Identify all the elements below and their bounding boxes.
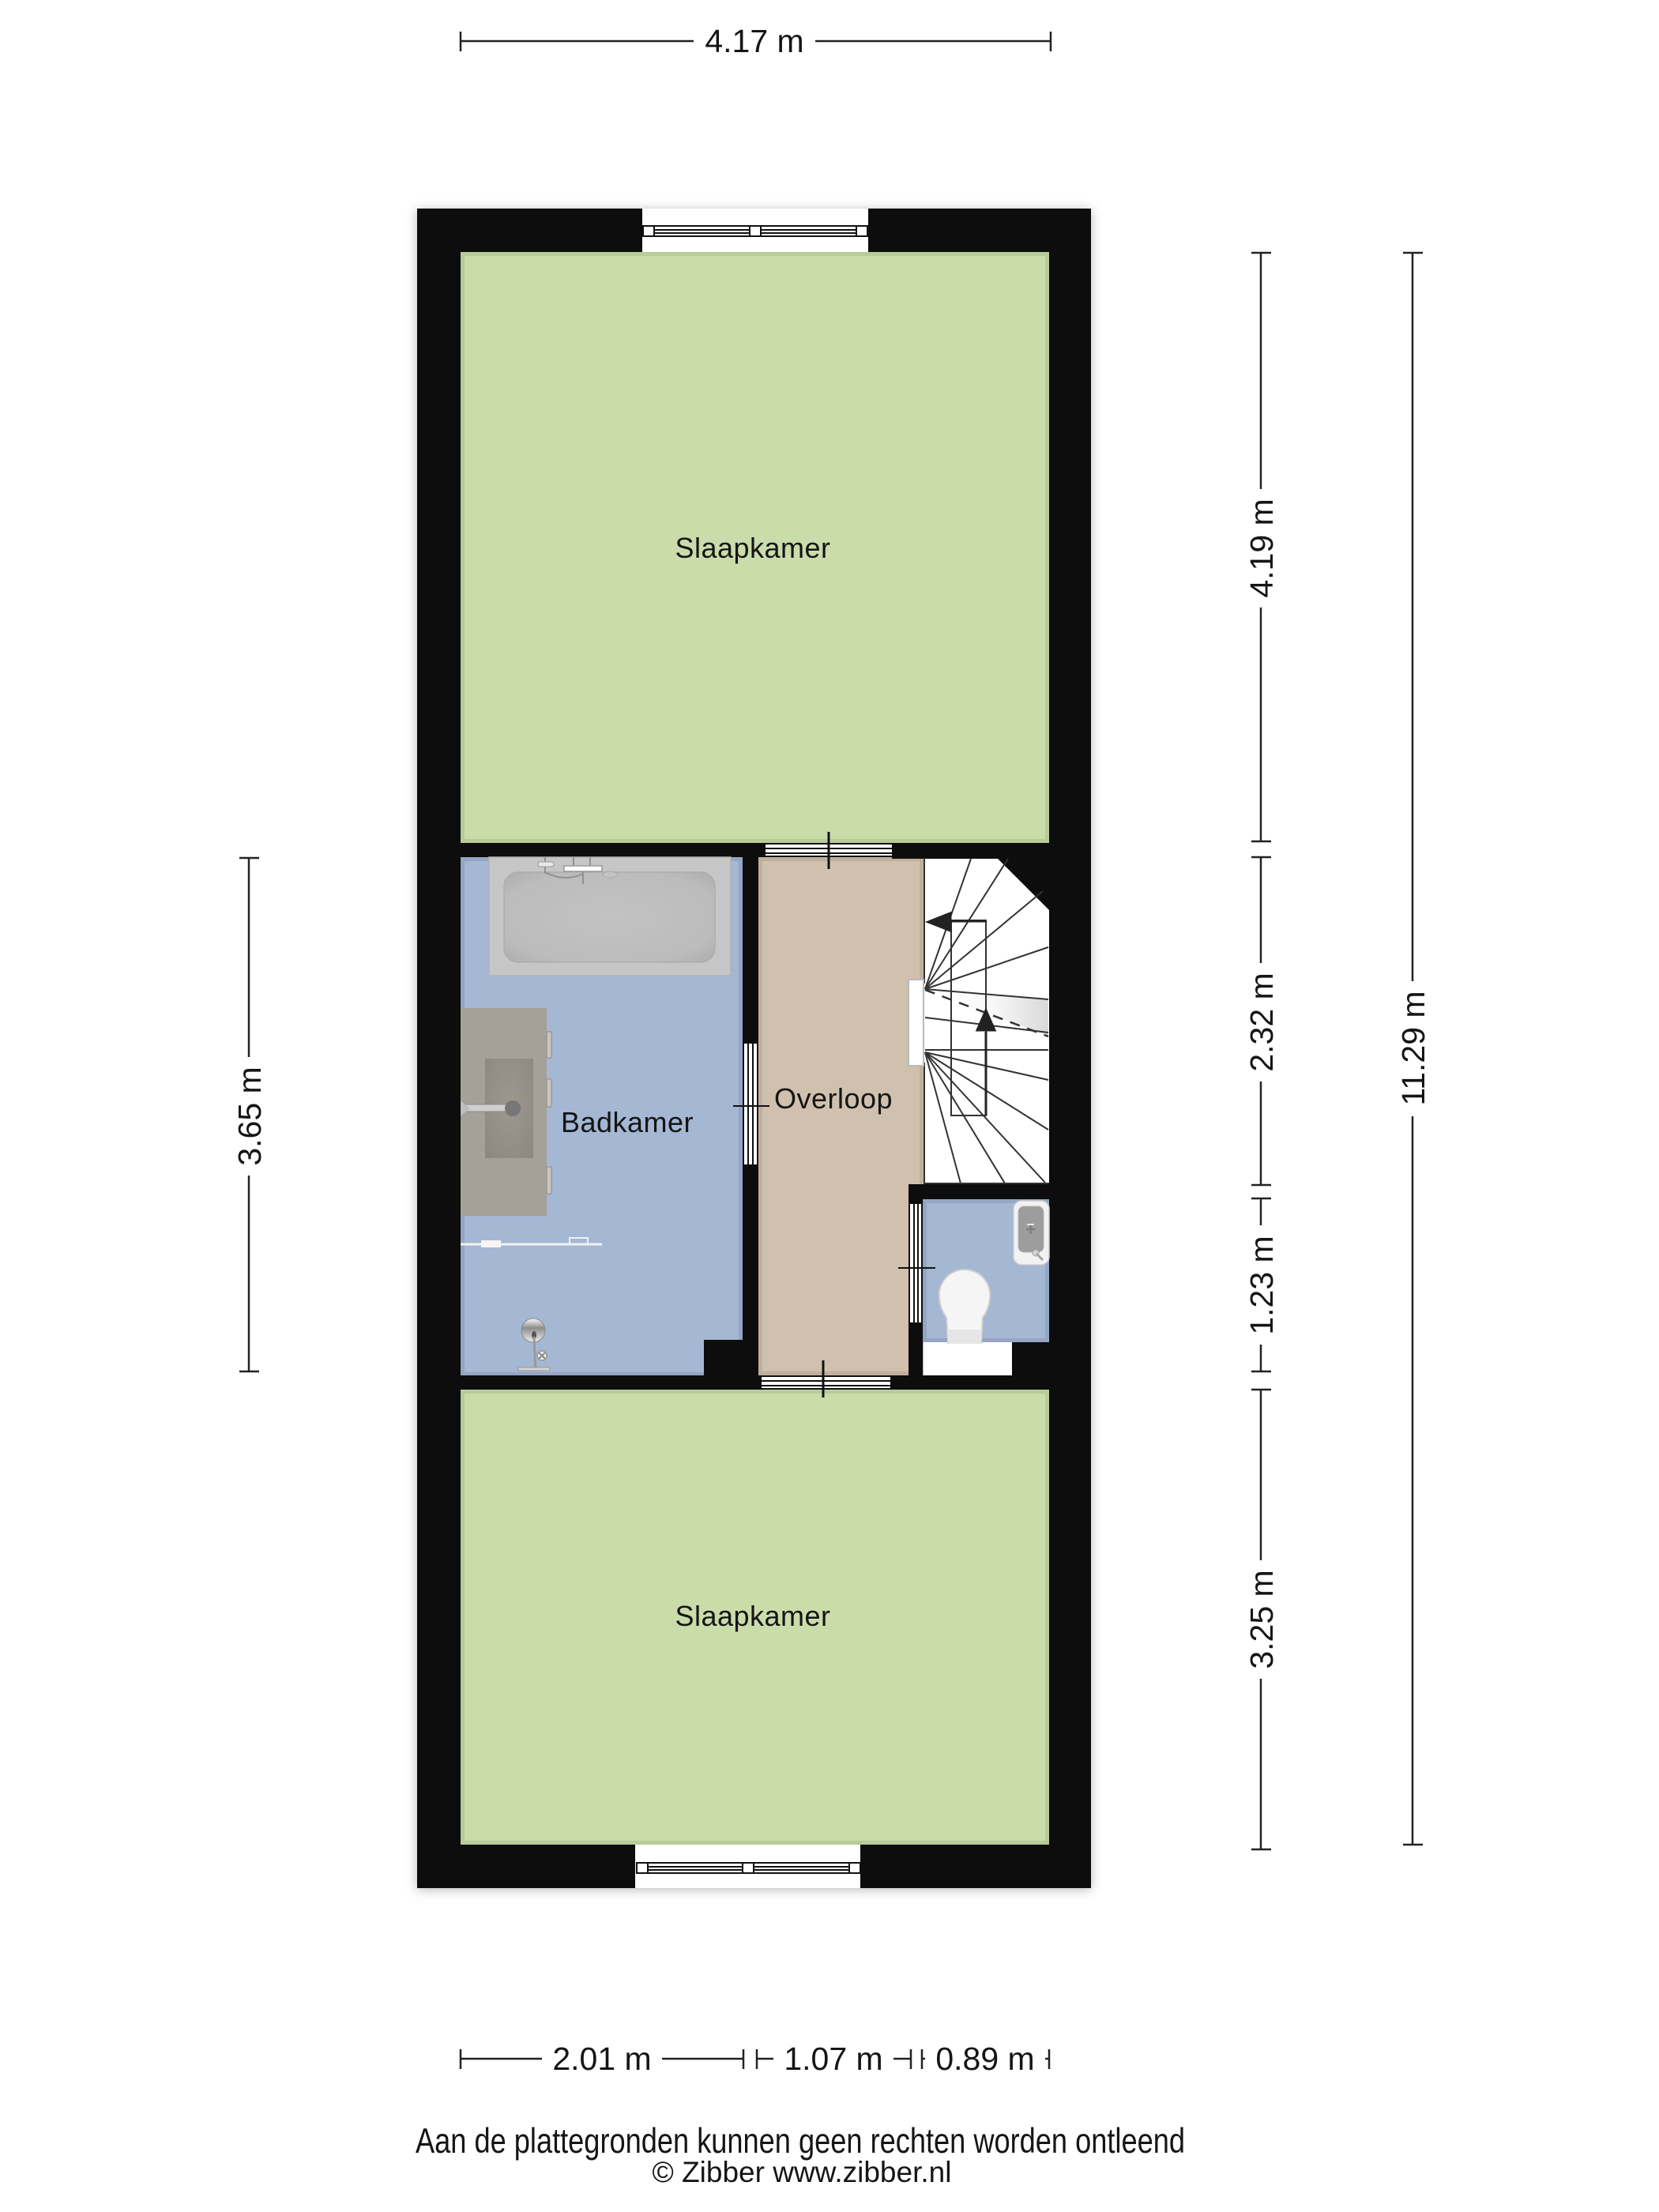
svg-text:2.32 m: 2.32 m bbox=[1243, 972, 1280, 1071]
svg-text:3.65 m: 3.65 m bbox=[231, 1066, 268, 1165]
svg-text:3.25 m: 3.25 m bbox=[1243, 1570, 1280, 1668]
svg-text:1.23 m: 1.23 m bbox=[1243, 1236, 1280, 1334]
svg-text:2.01 m: 2.01 m bbox=[552, 2041, 651, 2077]
svg-text:11.29 m: 11.29 m bbox=[1395, 991, 1431, 1105]
svg-text:4.19 m: 4.19 m bbox=[1243, 498, 1280, 597]
svg-text:Overloop: Overloop bbox=[774, 1082, 893, 1115]
svg-text:Slaapkamer: Slaapkamer bbox=[675, 1600, 830, 1632]
svg-text:Slaapkamer: Slaapkamer bbox=[675, 532, 830, 564]
svg-text:0.89 m: 0.89 m bbox=[935, 2041, 1034, 2077]
svg-text:Aan de plattegronden kunnen ge: Aan de plattegronden kunnen geen rechten… bbox=[416, 2122, 1185, 2161]
svg-text:1.07 m: 1.07 m bbox=[784, 2041, 882, 2077]
svg-text:© Zibber www.zibber.nl: © Zibber www.zibber.nl bbox=[653, 2156, 952, 2188]
svg-text:4.17 m: 4.17 m bbox=[705, 23, 803, 59]
svg-text:Badkamer: Badkamer bbox=[561, 1106, 694, 1138]
